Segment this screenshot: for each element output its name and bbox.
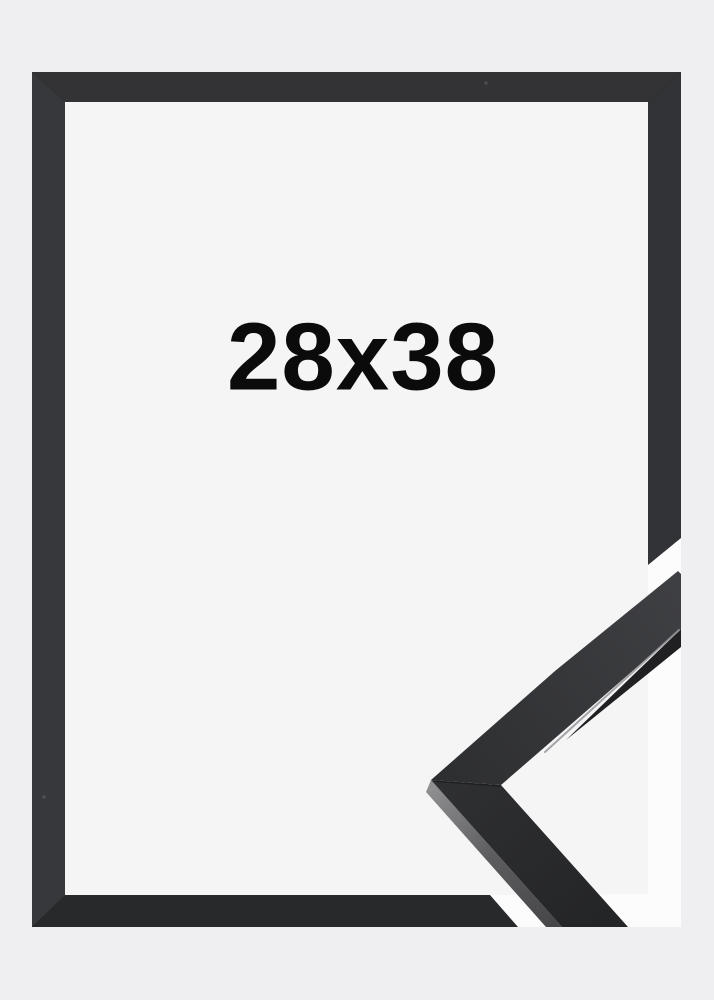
picture-frame <box>32 72 681 927</box>
frame-size-label: 28x38 <box>227 303 499 413</box>
dust-speck <box>484 81 487 84</box>
frame-bar-top <box>32 72 681 102</box>
frame-bar-left <box>32 72 65 927</box>
frame-inner-area <box>65 102 648 895</box>
frame-photo-graphic <box>0 0 714 1000</box>
product-image: 28x38 <box>0 0 714 1000</box>
dust-speck <box>42 795 45 798</box>
